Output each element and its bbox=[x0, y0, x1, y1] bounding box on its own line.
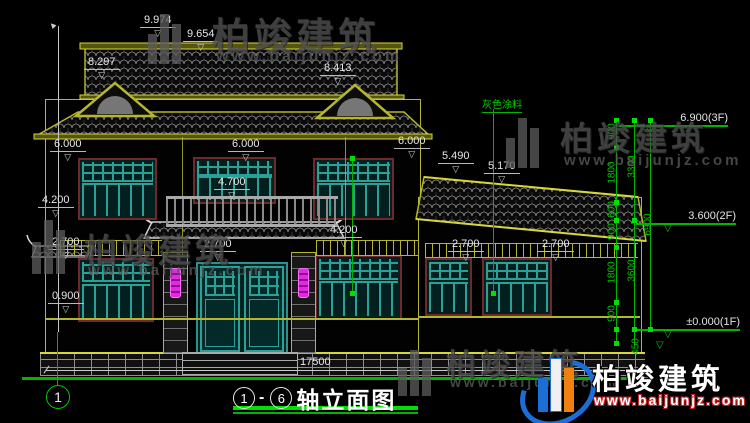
logo-url-text: www.baijunjz.com bbox=[594, 392, 747, 408]
cad-canvas: 9.974▽ 9.654▽ 8.297▽ 8.413▽ 6.000▽ 6.000… bbox=[0, 0, 750, 423]
balcony-railing bbox=[166, 196, 338, 227]
dim-arrow-icon: ▽ bbox=[408, 150, 415, 158]
axis-line bbox=[57, 332, 58, 385]
door-leaf-left bbox=[200, 266, 240, 352]
dim-arrow-icon: ▽ bbox=[214, 253, 221, 261]
title-axis-end: 6 bbox=[270, 387, 292, 409]
dim-center-2700: 2.700▽ bbox=[200, 238, 236, 261]
sill-line-main bbox=[46, 318, 418, 320]
dim-center-6000: 6.000▽ bbox=[228, 138, 264, 161]
dim-wing-2700a: 2.700▽ bbox=[448, 238, 484, 261]
chain-tick bbox=[614, 200, 619, 205]
dim-gable-left: 8.297▽ bbox=[84, 56, 120, 79]
dim-arrow-icon: ▽ bbox=[62, 305, 69, 313]
dim-arrow-icon: ▽ bbox=[64, 153, 71, 161]
dim-arrow-icon: ▽ bbox=[334, 77, 341, 85]
drawing-title: 1 - 6 轴立面图 bbox=[233, 381, 396, 415]
chain-tick bbox=[614, 218, 619, 223]
dim-total-width: 17500 bbox=[300, 356, 331, 368]
dim-arrow-icon: ▽ bbox=[452, 165, 459, 173]
watermark-building-icon bbox=[506, 116, 539, 168]
watermark-building-icon bbox=[398, 348, 431, 396]
paint-leader-line bbox=[493, 109, 494, 293]
dim-arrow-icon: ▽ bbox=[197, 43, 204, 51]
brand-logo: 柏竣建筑 www.baijunjz.com bbox=[518, 356, 750, 422]
chain-tick bbox=[648, 118, 653, 123]
dim-arrow-icon: ▽ bbox=[552, 253, 559, 261]
chain-dim-3600: 3600 bbox=[627, 249, 638, 293]
dim-arrow-icon: ▽ bbox=[242, 153, 249, 161]
left-dim-line bbox=[58, 26, 59, 332]
dim-gable-right: 8.413▽ bbox=[320, 62, 356, 85]
wall-lamp-right bbox=[298, 268, 309, 298]
level-arrow-icon: ▽ bbox=[664, 223, 672, 234]
paint-leader-end-2 bbox=[350, 291, 355, 296]
paint-leader-end-3 bbox=[350, 156, 355, 161]
title-separator: - bbox=[259, 389, 266, 407]
entrance-door bbox=[196, 262, 288, 356]
axis-bubble-1: 1 bbox=[46, 385, 70, 409]
dim-arrow-icon: ▽ bbox=[98, 71, 105, 79]
main-ridge bbox=[80, 43, 402, 49]
chain-tick bbox=[614, 341, 619, 346]
title-text: 轴立面图 bbox=[296, 381, 396, 415]
dim-left-4200: 4.200▽ bbox=[38, 194, 74, 217]
window-wing-left bbox=[425, 258, 472, 316]
window-2f-left bbox=[78, 158, 157, 220]
window-1f-left bbox=[78, 258, 154, 322]
chain-tick bbox=[614, 145, 619, 150]
dim-wing-2700b: 2.700▽ bbox=[538, 238, 574, 261]
dim-left-0900: 0.900▽ bbox=[48, 290, 84, 313]
dim-right-4200: 4.200▽ bbox=[326, 224, 362, 247]
chain-tick bbox=[632, 118, 637, 123]
chain-dim-1800b: 1800 bbox=[607, 251, 618, 295]
logo-building-icon bbox=[538, 358, 574, 412]
dim-ridge: 9.654▽ bbox=[183, 28, 219, 51]
dim-arrow-icon: ▽ bbox=[228, 191, 235, 199]
chain-tick bbox=[632, 327, 637, 332]
paint-callout-label: 灰色涂料 bbox=[482, 96, 522, 113]
window-1f-right bbox=[315, 255, 402, 320]
dim-arrow-icon: ▽ bbox=[462, 253, 469, 261]
chain-tick bbox=[614, 327, 619, 332]
door-leaf-right bbox=[244, 266, 284, 352]
dim-left-6000: 6.000▽ bbox=[50, 138, 86, 161]
chain-dim-3300: 3300 bbox=[627, 145, 638, 189]
dim-center-4700: 4.700▽ bbox=[214, 176, 250, 199]
dim-arrow-icon: ▽ bbox=[340, 239, 347, 247]
level-2f: 3.600(2F) ▽ bbox=[636, 210, 736, 225]
chain-tick bbox=[648, 327, 653, 332]
level-arrow-icon: ▽ bbox=[646, 125, 654, 136]
wall-lamp-left bbox=[170, 268, 181, 298]
chain-tick bbox=[632, 218, 637, 223]
dim-arrow-icon: ▽ bbox=[498, 175, 505, 183]
dim-right-6000: 6.000▽ bbox=[394, 135, 430, 158]
level-arrow-icon: ▽ bbox=[656, 340, 664, 351]
dim-arrow-icon: ▽ bbox=[52, 209, 59, 217]
title-axis-start: 1 bbox=[233, 387, 255, 409]
watermark-building-icon bbox=[32, 218, 65, 274]
level-arrow-icon: ▽ bbox=[664, 329, 672, 340]
paint-leader-end bbox=[491, 291, 496, 296]
chain-tick bbox=[614, 118, 619, 123]
chain-tick bbox=[614, 300, 619, 305]
entrance-steps bbox=[182, 352, 298, 375]
chain-tick bbox=[614, 245, 619, 250]
dim-wing-5490: 5.490▽ bbox=[438, 150, 474, 173]
watermark-building-icon bbox=[148, 12, 181, 64]
